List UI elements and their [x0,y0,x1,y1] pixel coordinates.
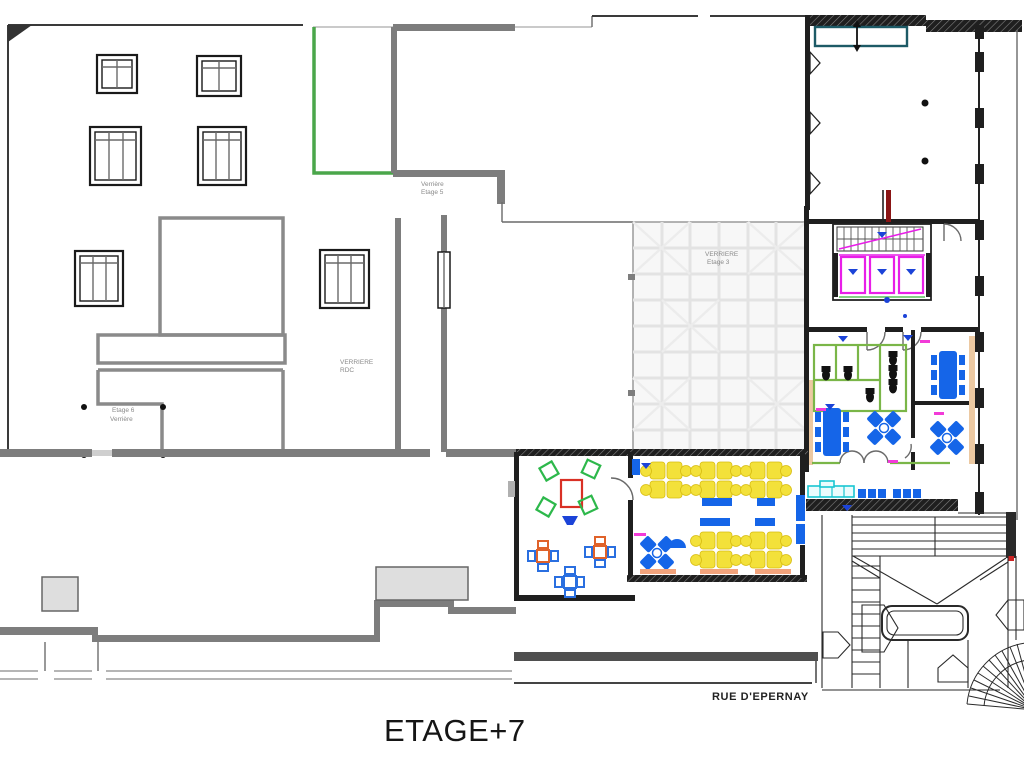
green-wall-etage5 [313,27,397,173]
wall-hatched [627,575,807,582]
lounge-chair [536,497,555,516]
toilet-icon [889,365,898,380]
wall-window [438,252,450,308]
room-tag [634,533,646,536]
left-roof-outline [8,25,303,452]
street-name: RUE D'EPERNAY [712,691,809,703]
toilet-icon [844,366,853,381]
desk-cluster-yellow [741,532,792,568]
roof-skylight-windows [75,55,369,308]
door-arc [905,444,911,458]
elevators [833,253,931,297]
bottom-left-edge [0,567,818,683]
room-tag [920,340,930,343]
room-tag [816,408,826,411]
kitchen-appliance [820,481,834,487]
exterior-wall-hatched [806,15,926,26]
skylight-window [75,251,123,306]
door-triangle [810,172,820,194]
table-set [555,567,584,597]
lounge-chair [582,460,601,479]
svg-text:Etage 5: Etage 5 [421,189,444,196]
desk-cluster-yellow [691,462,742,498]
corner-fan-roof [967,643,1024,710]
wall-hatched [806,499,958,511]
toilet-icon [822,366,831,381]
open-office [611,452,807,582]
marker-dot [884,297,890,303]
toilet-icon [889,351,898,366]
floor-title: ETAGE+7 [384,713,526,748]
roof-block [42,577,78,611]
south-facade-wall [514,652,818,661]
skylight-window [320,250,369,308]
double-door-arc [864,451,888,463]
room-tag [888,460,898,463]
wall-hatched [516,449,808,456]
right-exterior-wall [975,25,984,515]
floor-plan-drawing: VERRIERE RDC Etage 6 Verrière Verrière E… [0,0,1024,768]
door-triangle [810,52,820,74]
meeting-table [815,408,849,456]
label-etage6: Etage 6 [112,407,135,414]
table-set [528,541,558,571]
desk-cluster-yellow [741,462,792,498]
door-arc [611,478,633,500]
stair-elevator-block [806,190,980,303]
skylight-window [97,55,137,93]
gray-walls-left-block [0,24,516,458]
marker-triangle [838,336,848,342]
lounge-chair [539,461,558,480]
staircase [837,227,923,251]
skylight-window [90,127,141,185]
duct-riser [886,190,891,222]
label-etage5: Verrière [421,181,444,188]
exterior-wall-hatched [926,20,1022,32]
room-tag [934,412,944,415]
toilet-block [814,345,906,411]
top-boundary-lines [502,16,806,222]
kitchen-strip [806,481,958,511]
label-verriere-rdc: VERRIERE [340,359,374,366]
column-dot [922,100,929,107]
street-edge-lines [0,671,512,679]
meeting-table [931,351,965,399]
svg-text:RDC: RDC [340,367,354,374]
desk-cluster-yellow [691,532,742,568]
corner-wedge [8,25,32,42]
door-triangle [810,112,820,134]
neighbor-roof-plan [822,512,1024,710]
ladder-rungs [852,566,880,674]
column-dot [922,158,929,165]
arrow-down-icon [853,45,861,52]
cabinet-row [858,489,921,498]
boundary-marker [1008,556,1014,561]
skylight-window [198,127,246,185]
dormer [823,632,850,658]
door-arc [944,224,961,241]
radiators [640,569,791,574]
desk-cluster-yellow [641,462,692,498]
dormer [938,655,968,682]
desk-cluster-x [857,401,911,455]
svg-text:Etage 3: Etage 3 [707,259,730,266]
desk-cluster-x [920,411,974,465]
dormer [996,600,1024,630]
label-etage3: VERRIERE [705,251,739,258]
roof-block [376,567,468,600]
marker-triangle [562,516,578,525]
toilet-icon [866,388,875,403]
skylight-window [197,56,241,96]
wall-stub [508,481,515,497]
toilet-icon [889,379,898,394]
table-set [585,537,615,567]
svg-text:Verrière: Verrière [110,416,133,423]
double-door-arc [840,451,864,463]
door-arc [867,332,885,350]
